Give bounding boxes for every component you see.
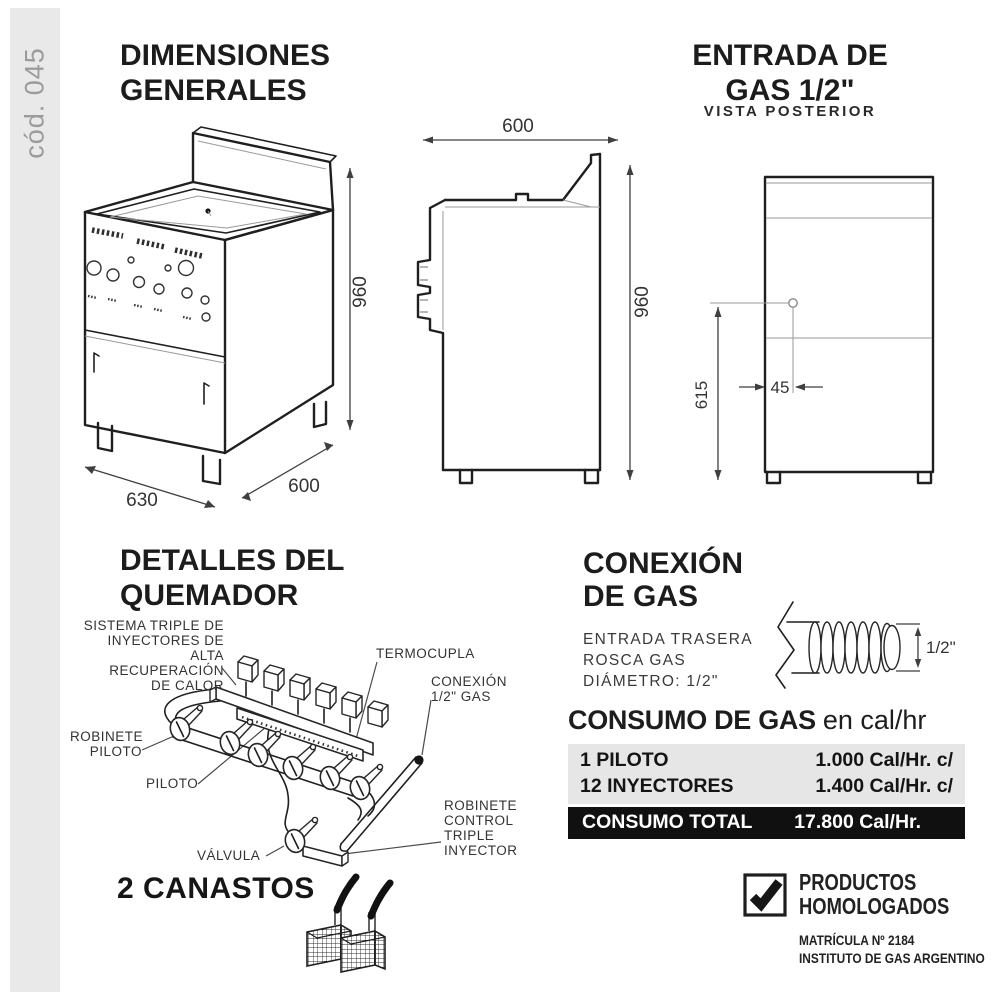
dim-side-600: 600	[502, 116, 534, 137]
dim-630: 630	[126, 490, 158, 511]
title-line: DETALLES DEL	[120, 543, 344, 578]
burner-detail-figure: SISTEMA TRIPLE DE INYECTORES DE ALTA REC…	[70, 610, 570, 880]
row-value: 1.400 Cal/Hr. c/	[815, 773, 953, 799]
row-label: 12 INYECTORES	[580, 773, 734, 799]
table-row-total: CONSUMO TOTAL 17.800 Cal/Hr.	[568, 807, 965, 839]
consumo-table: 1 PILOTO 1.000 Cal/Hr. c/ 12 INYECTORES …	[568, 744, 965, 839]
row-label: 1 PILOTO	[580, 747, 669, 773]
title-line: CONEXIÓN	[583, 547, 743, 580]
dim-960: 960	[350, 276, 371, 308]
label-termocupla: TERMOCUPLA	[376, 646, 475, 661]
table-row: 1 PILOTO 1.000 Cal/Hr. c/	[580, 747, 953, 773]
title-line: GENERALES	[120, 73, 330, 108]
row-value: 1.000 Cal/Hr. c/	[815, 747, 953, 773]
label-robinete-control: ROBINETE CONTROL TRIPLE INYECTOR	[444, 798, 518, 858]
baskets-drawing	[295, 862, 410, 977]
dim-600-depth: 600	[288, 476, 320, 497]
threaded-pipe-drawing: 1/2"	[755, 590, 965, 710]
checkmark-box-icon	[742, 872, 789, 919]
label-sistema-triple: SISTEMA TRIPLE DE INYECTORES DE ALTA REC…	[78, 618, 224, 693]
consumo-title-light: en cal/hr	[823, 705, 927, 735]
title-line: DE GAS	[583, 580, 743, 613]
dim-615: 615	[692, 381, 711, 409]
instituto-name: INSTITUTO DE GAS ARGENTINO	[799, 950, 985, 966]
label-piloto: PILOTO	[146, 776, 198, 791]
label-robinete-piloto: ROBINETE PILOTO	[70, 729, 142, 759]
rear-view-drawing: 615 45	[695, 155, 985, 510]
table-row: 12 INYECTORES 1.400 Cal/Hr. c/	[580, 773, 953, 799]
title-line: QUEMADOR	[120, 578, 344, 613]
title-line: DIMENSIONES	[120, 38, 330, 73]
consumo-title: CONSUMO DE GASen cal/hr	[568, 705, 926, 736]
total-value: 17.800 Cal/Hr.	[794, 811, 921, 833]
code-sidebar: cód. 045	[10, 8, 60, 992]
section-title-dimensiones: DIMENSIONES GENERALES	[120, 38, 330, 108]
dim-pipe-half-inch: 1/2"	[926, 638, 956, 657]
title-line: PRODUCTOS	[799, 871, 949, 895]
title-line: ENTRADA DE	[655, 38, 925, 73]
dim-45: 45	[771, 378, 790, 397]
product-code: cód. 045	[20, 47, 51, 159]
canastos-title: 2 CANASTOS	[117, 872, 315, 906]
section-title-conexion-gas: CONEXIÓN DE GAS	[583, 547, 743, 613]
section-title-entrada-gas: ENTRADA DE GAS 1/2"	[655, 38, 925, 108]
section-title-quemador: DETALLES DEL QUEMADOR	[120, 543, 344, 613]
subtitle-vista-posterior: VISTA POSTERIOR	[655, 103, 925, 120]
label-conexion-gas: CONEXIÓN 1/2" GAS	[431, 674, 507, 704]
label-valvula: VÁLVULA	[197, 848, 260, 863]
dim-side-960: 960	[632, 286, 653, 318]
spec-sheet-page: cód. 045 DIMENSIONES GENERALES ENTRADA D…	[0, 0, 1000, 1000]
matricula-number: MATRÍCULA Nº 2184	[799, 932, 914, 948]
consumo-table-body: 1 PILOTO 1.000 Cal/Hr. c/ 12 INYECTORES …	[568, 744, 965, 804]
title-line: HOMOLOGADOS	[799, 895, 949, 919]
isometric-fryer-drawing: 630 600 960	[70, 120, 380, 525]
consumo-title-bold: CONSUMO DE GAS	[568, 705, 816, 735]
total-label: CONSUMO TOTAL	[582, 811, 752, 833]
conexion-gas-description: ENTRADA TRASERA ROSCA GAS DIÁMETRO: 1/2"	[583, 629, 753, 692]
side-view-drawing: 600 960	[410, 115, 670, 500]
homologados-title: PRODUCTOS HOMOLOGADOS	[799, 871, 949, 918]
